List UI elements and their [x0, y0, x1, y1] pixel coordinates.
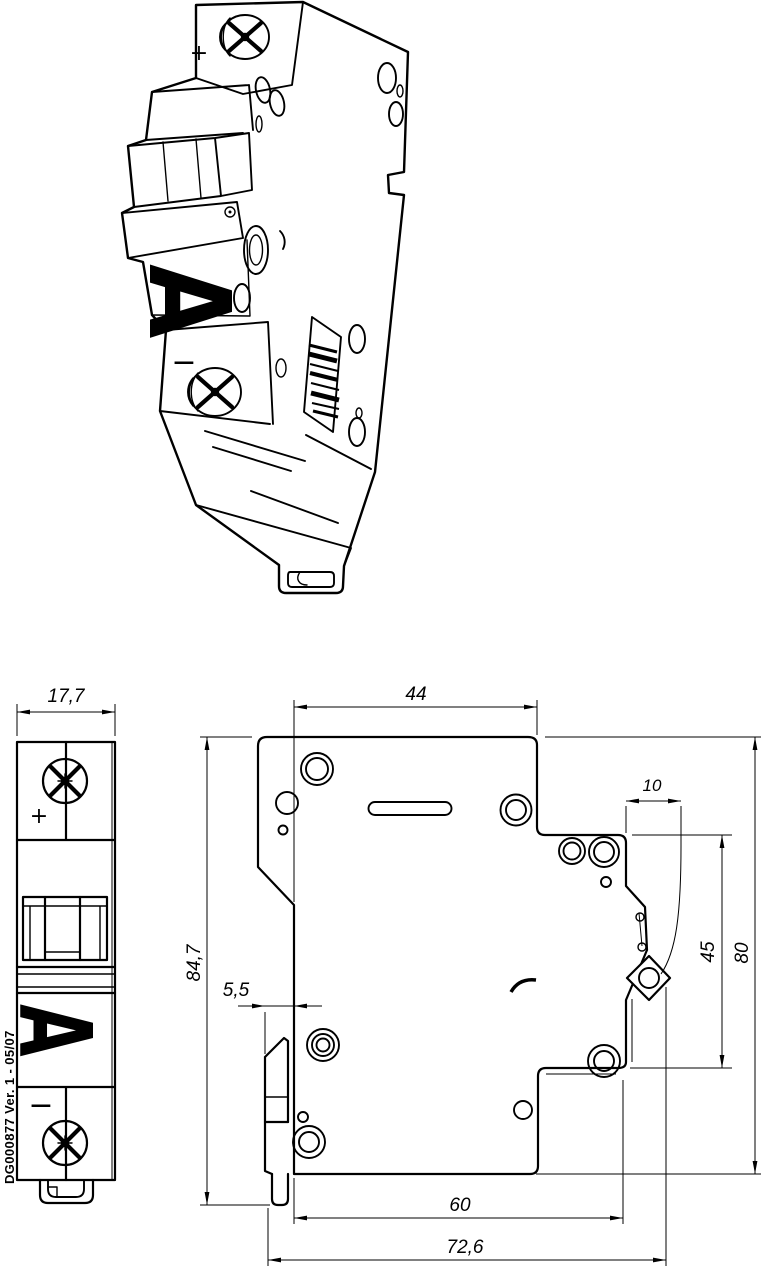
svg-text:72,6: 72,6 [447, 1237, 484, 1258]
iso-side-panel [234, 63, 403, 446]
front-view: + A − 17,7 [0, 686, 115, 1203]
svg-text:80: 80 [732, 942, 753, 964]
svg-text:17,7: 17,7 [48, 686, 86, 707]
doc-reference-label: DG000877 Ver. 1 - 05/07 [2, 1030, 17, 1184]
svg-text:60: 60 [449, 1195, 471, 1216]
dim-lower-depth: 60 [294, 1080, 623, 1224]
iso-rating-label [304, 317, 341, 432]
side-body-outline [258, 737, 647, 1174]
dim-terminal-depth: 10 [626, 776, 681, 974]
dim-top-depth: 44 [294, 684, 537, 902]
side-terminal-diamond [627, 956, 670, 1000]
svg-text:84,7: 84,7 [184, 943, 205, 981]
front-toggle [23, 897, 107, 960]
dimension-annotations: 44 10 84,7 5,5 45 [184, 684, 761, 1266]
isometric-view: + A − [122, 2, 408, 593]
dim-front-width: 17,7 [17, 686, 115, 736]
side-din-clip [265, 1038, 288, 1205]
svg-text:45: 45 [698, 941, 719, 963]
plus-marking-iso: + [190, 41, 208, 66]
circuit-breaker-drawing: + A − [0, 0, 762, 1267]
technical-drawing-page: + A − [0, 0, 762, 1267]
iso-escutcheon-plate [122, 202, 243, 258]
front-din-clip [40, 1180, 93, 1203]
svg-text:10: 10 [643, 776, 662, 795]
svg-text:5,5: 5,5 [223, 980, 250, 1001]
iso-din-rail-area [196, 431, 371, 587]
side-view [258, 737, 670, 1205]
plus-marking-front: + [30, 804, 48, 829]
svg-text:44: 44 [405, 684, 426, 705]
iso-top-terminal: + [190, 2, 303, 94]
minus-marking-front: − [28, 1088, 53, 1123]
iso-toggle-lever [128, 133, 252, 207]
minus-marking-iso: − [171, 345, 196, 380]
side-holes [276, 753, 646, 1158]
